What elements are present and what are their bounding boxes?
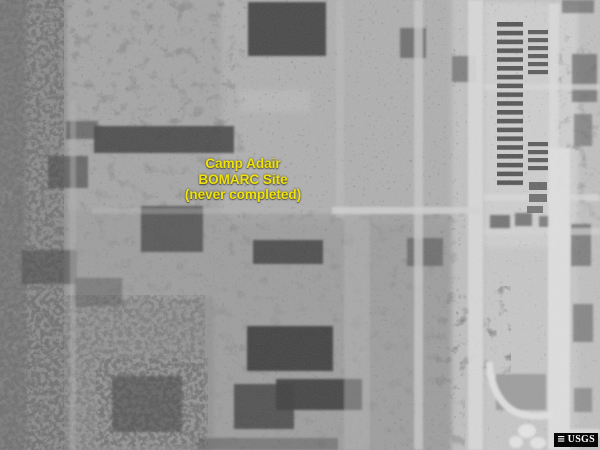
aerial-photo-art — [0, 0, 600, 450]
usgs-watermark: ≡ USGS — [554, 433, 598, 447]
caption-line-1: Camp Adair — [185, 156, 301, 172]
usgs-layers-icon: ≡ — [557, 435, 566, 445]
aerial-photo: Camp Adair BOMARC Site (never completed)… — [0, 0, 600, 450]
usgs-label: USGS — [568, 433, 595, 447]
site-caption: Camp Adair BOMARC Site (never completed) — [185, 156, 301, 203]
caption-line-3: (never completed) — [185, 187, 301, 203]
caption-line-2: BOMARC Site — [185, 172, 301, 188]
